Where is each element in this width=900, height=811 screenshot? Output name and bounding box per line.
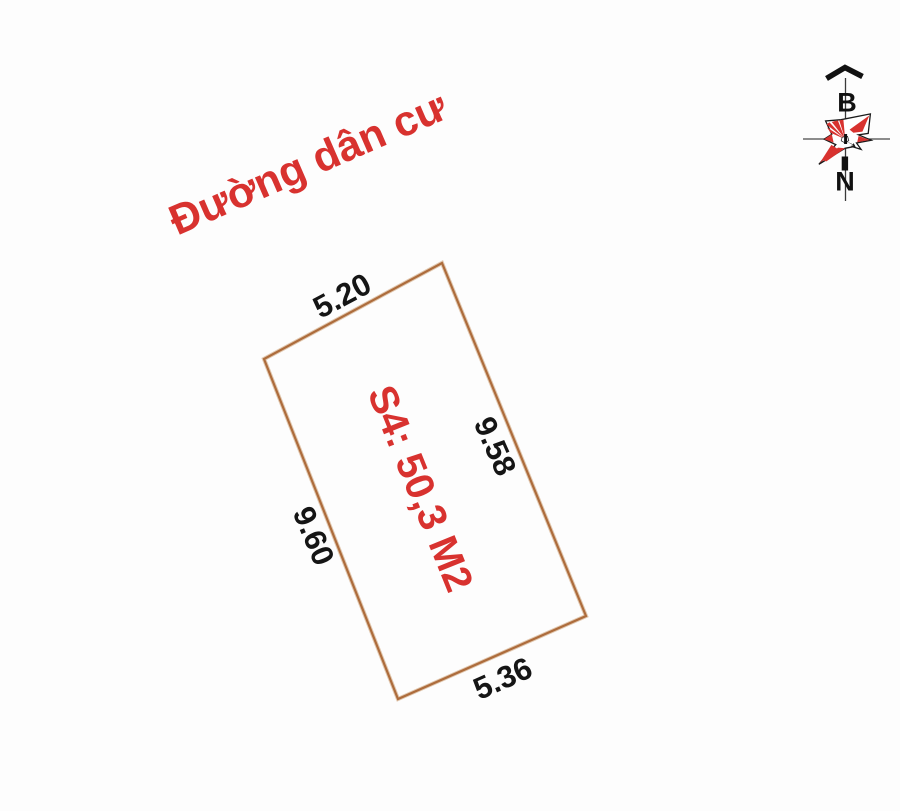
svg-text:N: N (835, 167, 855, 197)
svg-text:B: B (837, 88, 857, 118)
